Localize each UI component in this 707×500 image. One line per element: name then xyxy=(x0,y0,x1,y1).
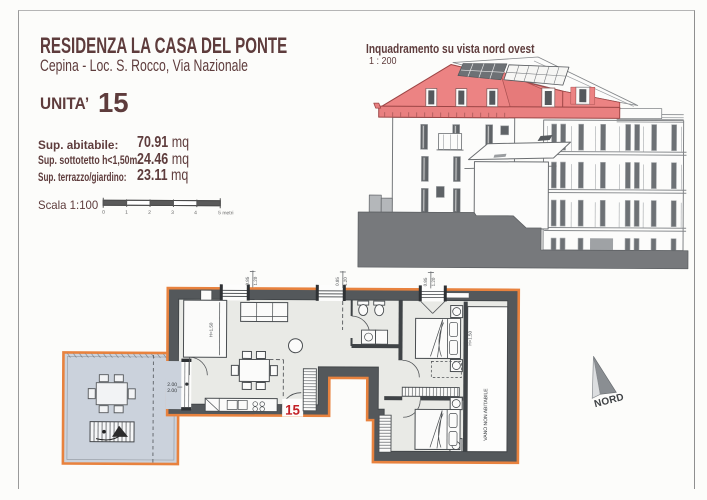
svg-text:15: 15 xyxy=(285,402,300,417)
svg-text:1: 1 xyxy=(125,210,128,216)
svg-text:4: 4 xyxy=(194,210,197,216)
svg-text:5 metri: 5 metri xyxy=(218,210,233,216)
svg-text:0: 0 xyxy=(102,210,105,216)
svg-text:1.20: 1.20 xyxy=(253,276,258,285)
svg-text:0.85: 0.85 xyxy=(423,277,428,286)
svg-text:H=1.50: H=1.50 xyxy=(468,330,473,345)
svg-text:0.85: 0.85 xyxy=(245,276,250,285)
svg-text:1.20: 1.20 xyxy=(431,277,436,286)
svg-text:1.20: 1.20 xyxy=(343,277,348,286)
svg-text:2.00: 2.00 xyxy=(167,388,177,394)
svg-text:H=1.50: H=1.50 xyxy=(209,322,214,337)
svg-text:3: 3 xyxy=(171,210,174,216)
svg-text:0.85: 0.85 xyxy=(335,277,340,286)
svg-text:2: 2 xyxy=(148,210,151,216)
svg-text:VANO NON ABITABILE: VANO NON ABITABILE xyxy=(483,388,489,441)
